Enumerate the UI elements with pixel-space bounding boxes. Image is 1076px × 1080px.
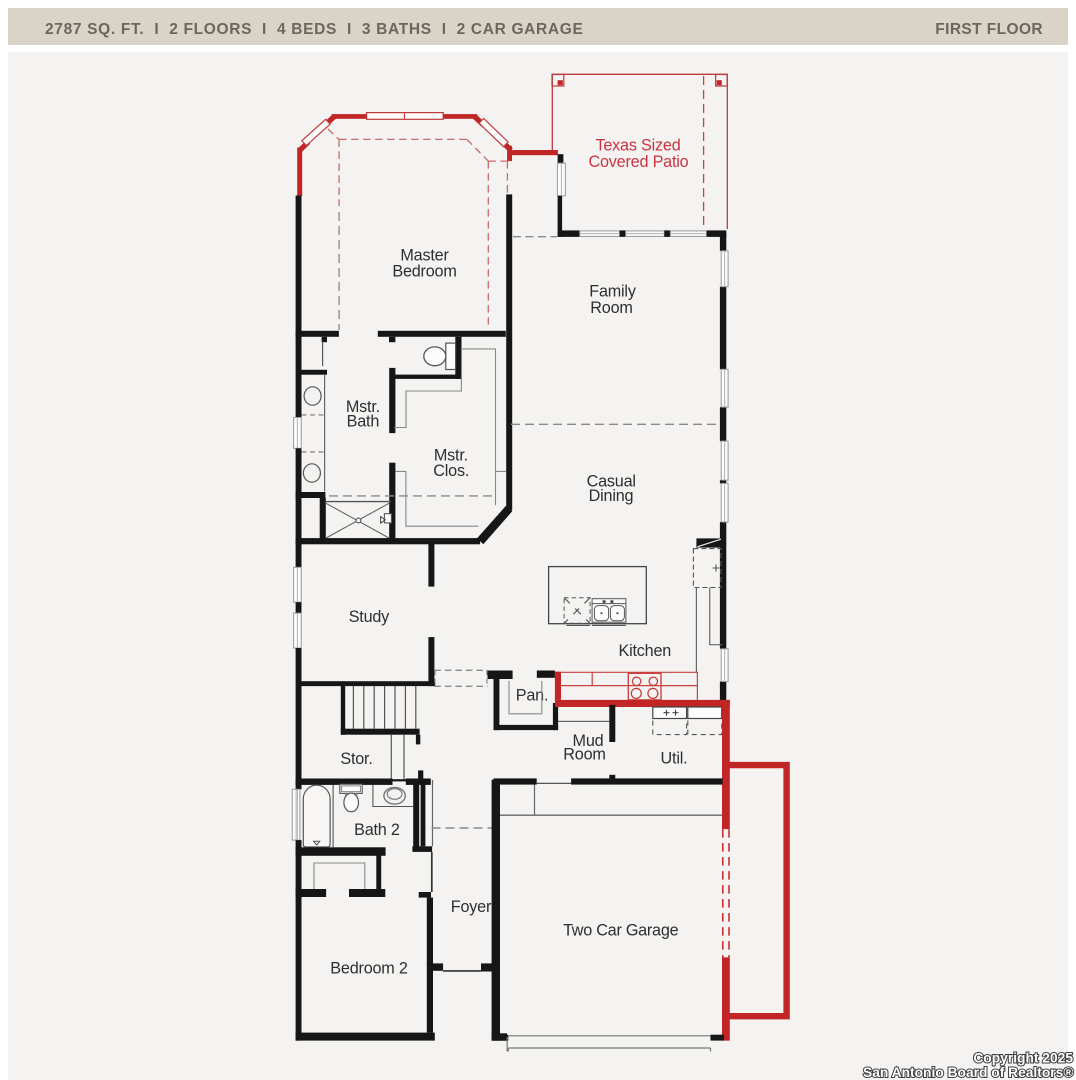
svg-text:Bedroom: Bedroom xyxy=(392,263,456,281)
svg-text:Kitchen: Kitchen xyxy=(619,642,672,660)
svg-text:Stor.: Stor. xyxy=(340,750,372,768)
svg-text:Pan.: Pan. xyxy=(516,687,549,705)
svg-text:Master: Master xyxy=(400,246,449,264)
svg-text:Dining: Dining xyxy=(589,487,634,505)
svg-text:2787 SQ. FT. I 2 FLOORS I: 2787 SQ. FT. I 2 FLOORS I 4 BEDS I 3 BAT… xyxy=(45,21,584,38)
svg-text:Copyright 2025: Copyright 2025 xyxy=(973,1051,1073,1066)
svg-text:Two Car Garage: Two Car Garage xyxy=(563,922,679,940)
svg-text:FIRST FLOOR: FIRST FLOOR xyxy=(935,21,1043,38)
svg-text:Foyer: Foyer xyxy=(451,898,492,916)
svg-text:Room: Room xyxy=(590,299,632,317)
svg-text:Util.: Util. xyxy=(661,750,688,768)
svg-text:Bath 2: Bath 2 xyxy=(354,821,400,839)
svg-text:Bedroom 2: Bedroom 2 xyxy=(330,959,408,977)
svg-text:Clos.: Clos. xyxy=(433,462,469,480)
svg-text:Covered Patio: Covered Patio xyxy=(589,153,689,171)
svg-text:Bath: Bath xyxy=(347,412,380,430)
svg-text:Family: Family xyxy=(589,283,637,301)
svg-text:San Antonio Board of Realtors®: San Antonio Board of Realtors® xyxy=(863,1065,1073,1080)
svg-text:Room: Room xyxy=(563,745,605,763)
svg-text:Texas Sized: Texas Sized xyxy=(595,136,680,154)
svg-text:Study: Study xyxy=(349,608,390,626)
